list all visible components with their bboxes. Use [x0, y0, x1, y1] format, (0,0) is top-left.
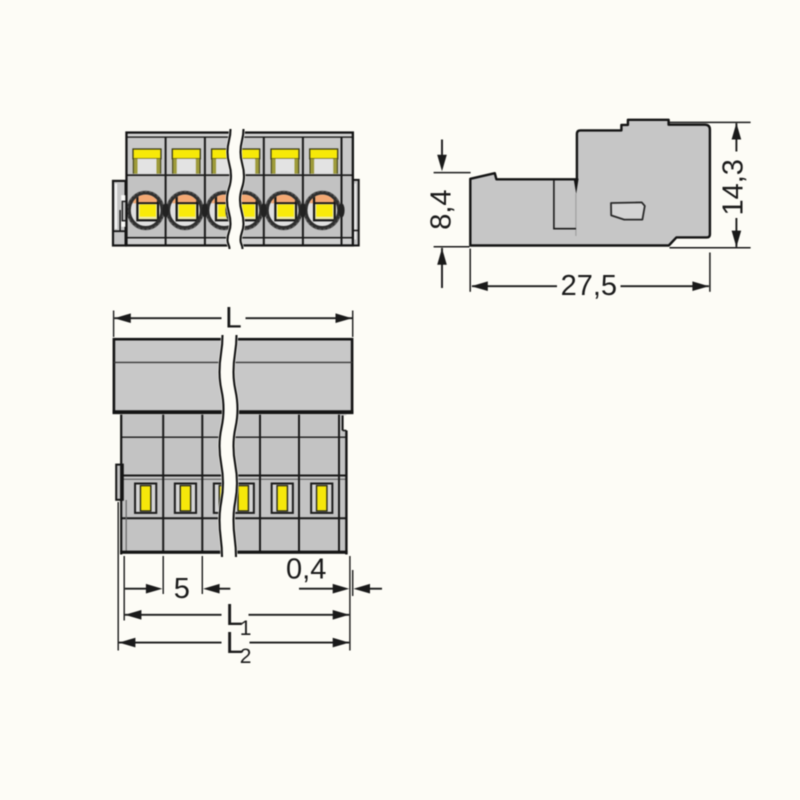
svg-text:8,4: 8,4 [426, 189, 458, 229]
svg-text:2: 2 [240, 645, 252, 668]
svg-text:27,5: 27,5 [561, 270, 617, 302]
svg-text:14,3: 14,3 [718, 159, 750, 215]
svg-text:0,4: 0,4 [286, 553, 326, 585]
svg-text:L: L [225, 301, 242, 334]
svg-text:5: 5 [174, 573, 190, 605]
